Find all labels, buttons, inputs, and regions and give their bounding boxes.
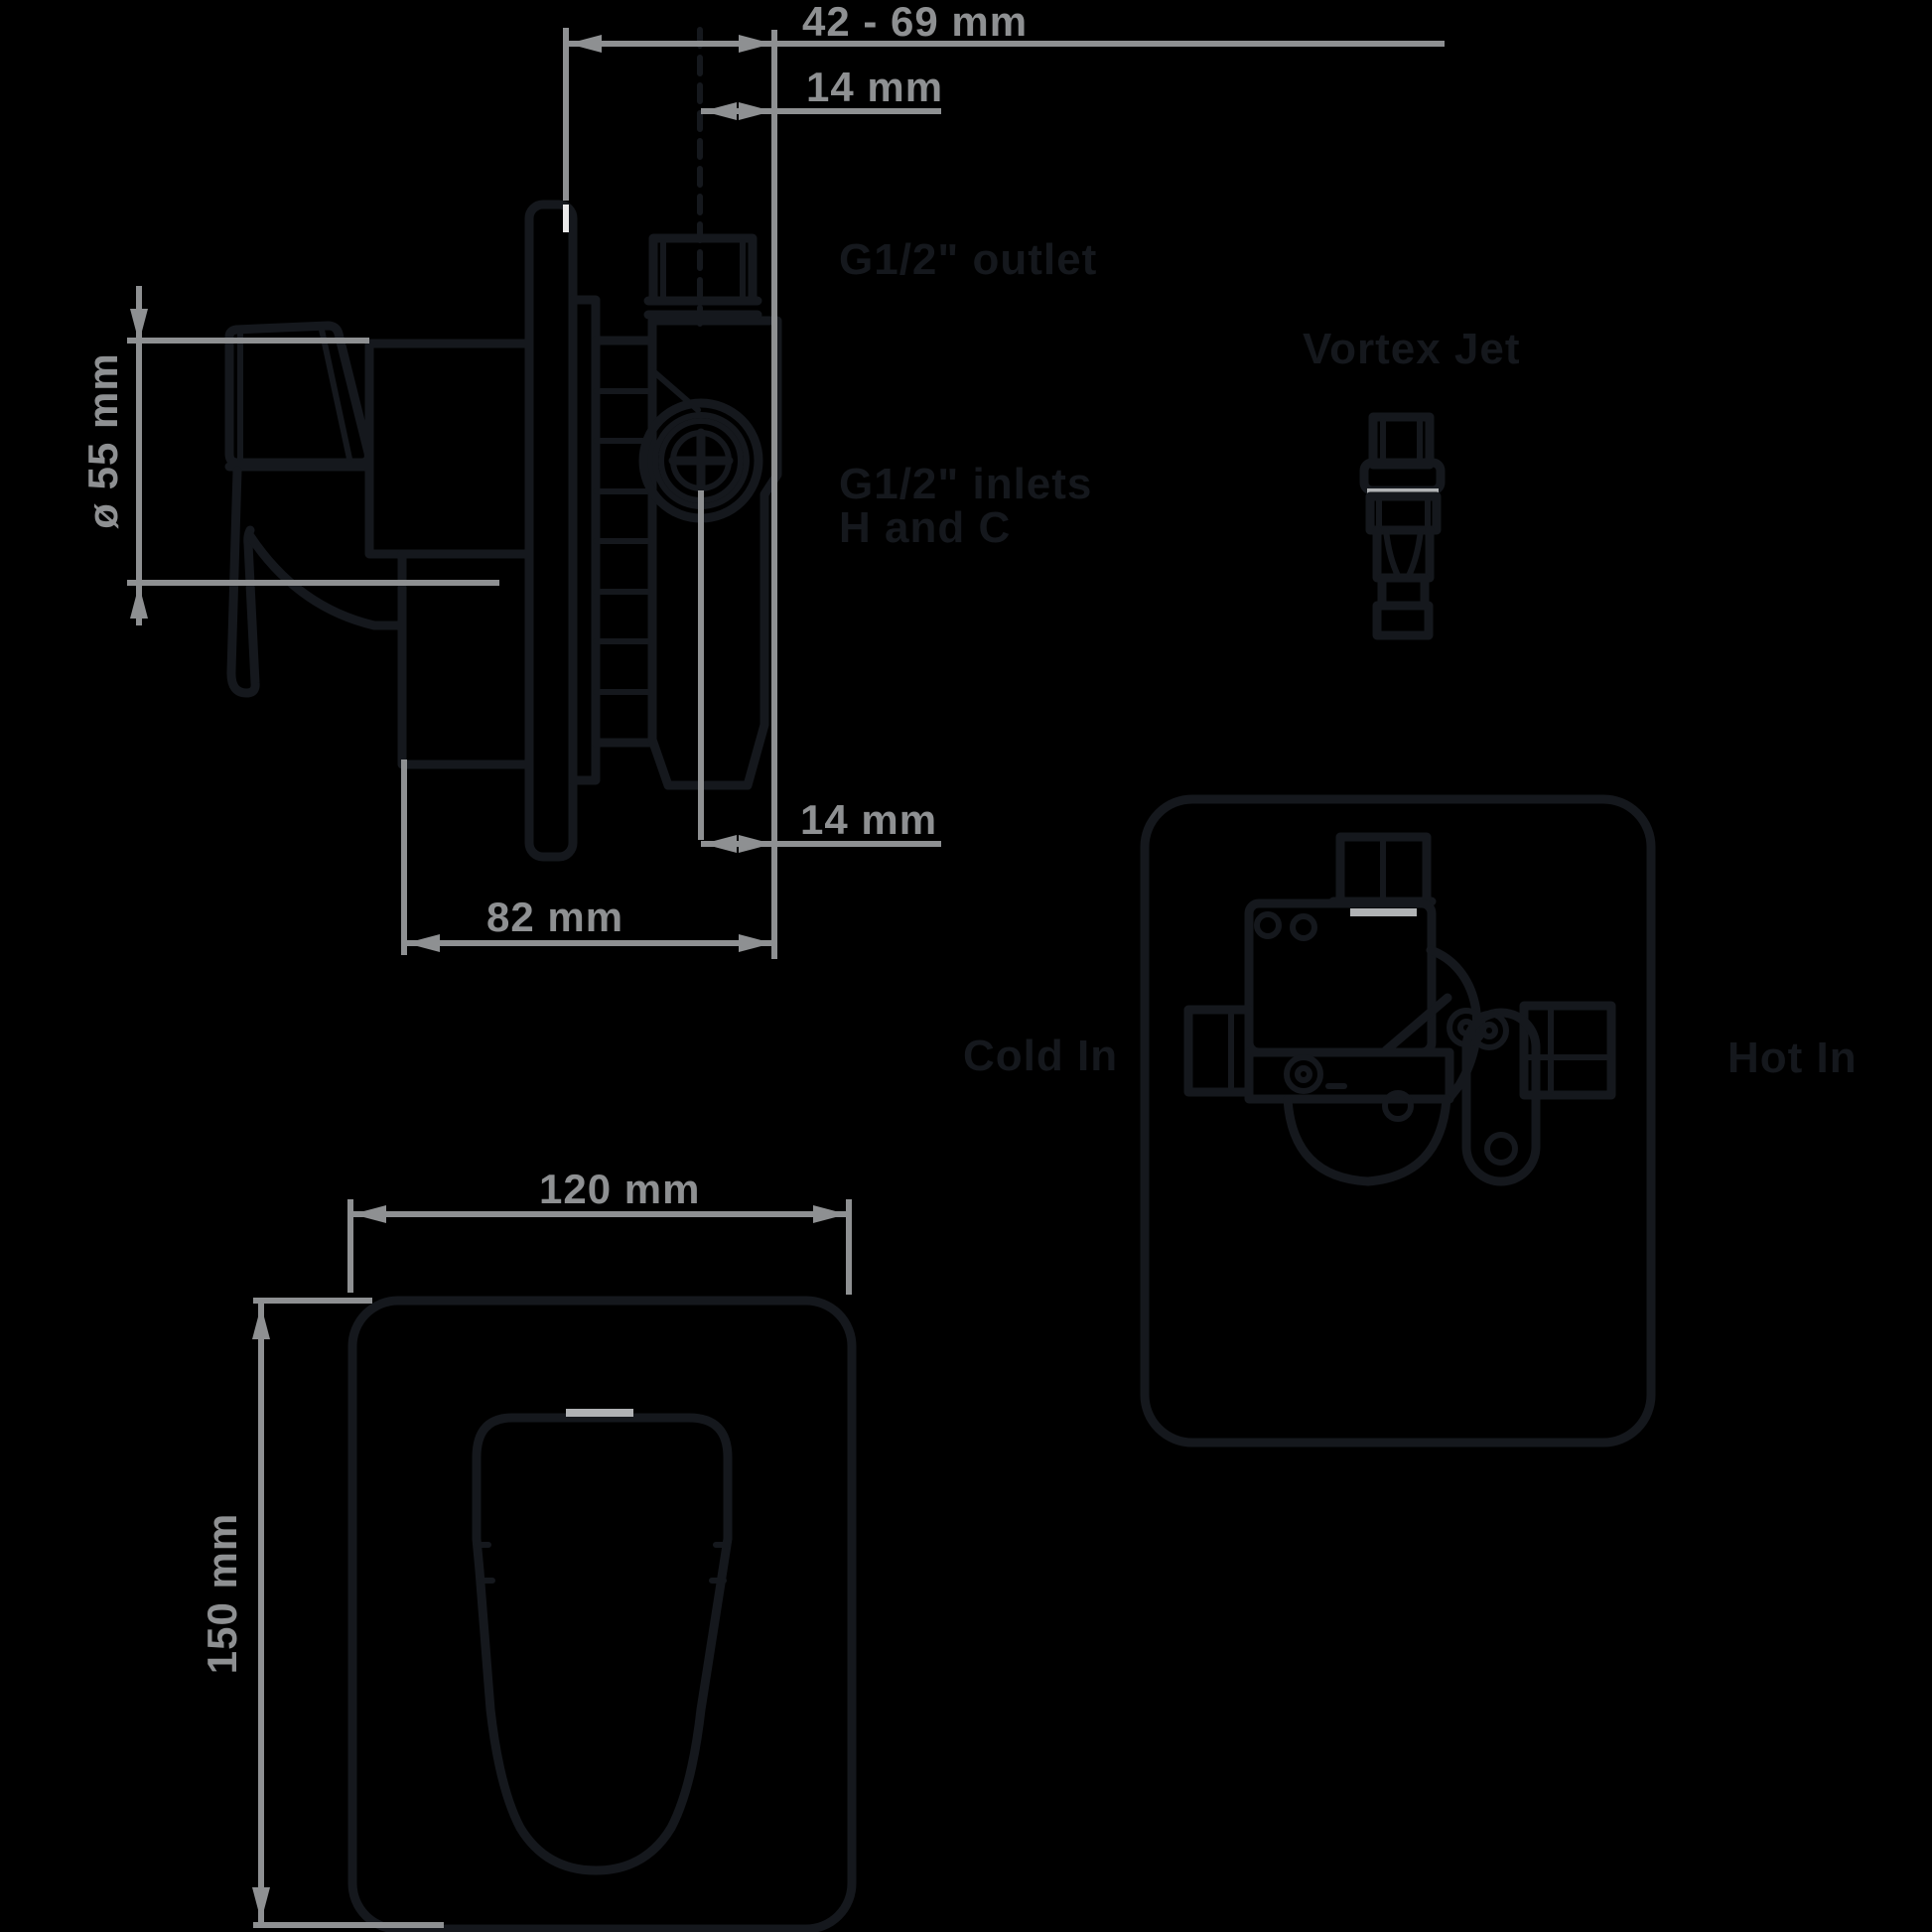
hot-in-label: Hot In [1727, 1034, 1858, 1082]
inlets-label-line2: H and C [839, 503, 1011, 552]
dim-label-height: 150 mm [199, 1513, 245, 1674]
cold-in-label: Cold In [963, 1032, 1118, 1080]
vortex-jet-label: Vortex Jet [1303, 325, 1521, 373]
dim-label-offset-top: 14 mm [806, 64, 943, 110]
background [0, 0, 1932, 1932]
inlets-label-line1: G1/2" inlets [839, 460, 1092, 508]
technical-drawing-page: 42 - 69 mm 14 mm ø 55 mm 14 mm 82 mm G1/… [0, 0, 1932, 1932]
dim-label-width: 120 mm [539, 1166, 700, 1212]
dim-label-offset-bottom: 14 mm [800, 796, 937, 843]
outlet-label: G1/2" outlet [839, 235, 1097, 284]
dim-label-depth: 82 mm [486, 894, 623, 940]
dim-label-span: 42 - 69 mm [802, 0, 1028, 45]
dim-label-diameter: ø 55 mm [79, 352, 126, 528]
mixer-valve-diagram: 42 - 69 mm 14 mm ø 55 mm 14 mm 82 mm G1/… [0, 0, 1932, 1932]
